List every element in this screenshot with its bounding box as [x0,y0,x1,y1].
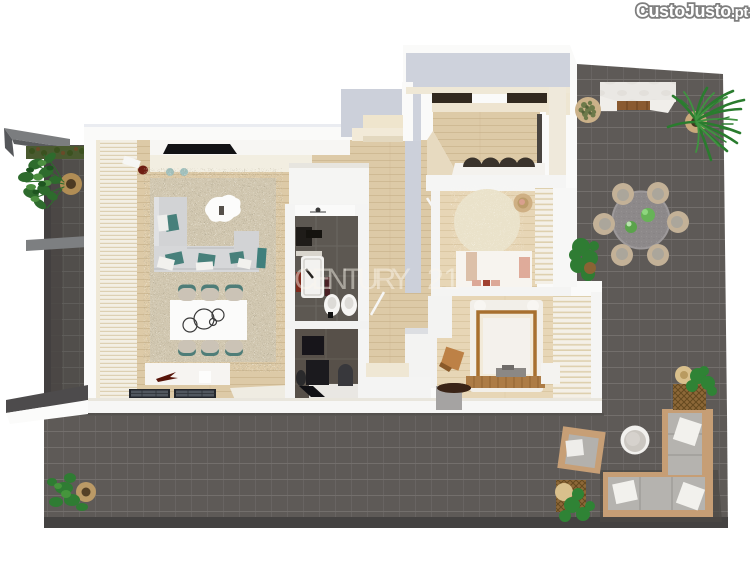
svg-text:CustoJusto.pt: CustoJusto.pt [636,1,749,21]
svg-text:21: 21 [427,263,460,296]
svg-text:CENTURY: CENTURY [294,263,411,296]
